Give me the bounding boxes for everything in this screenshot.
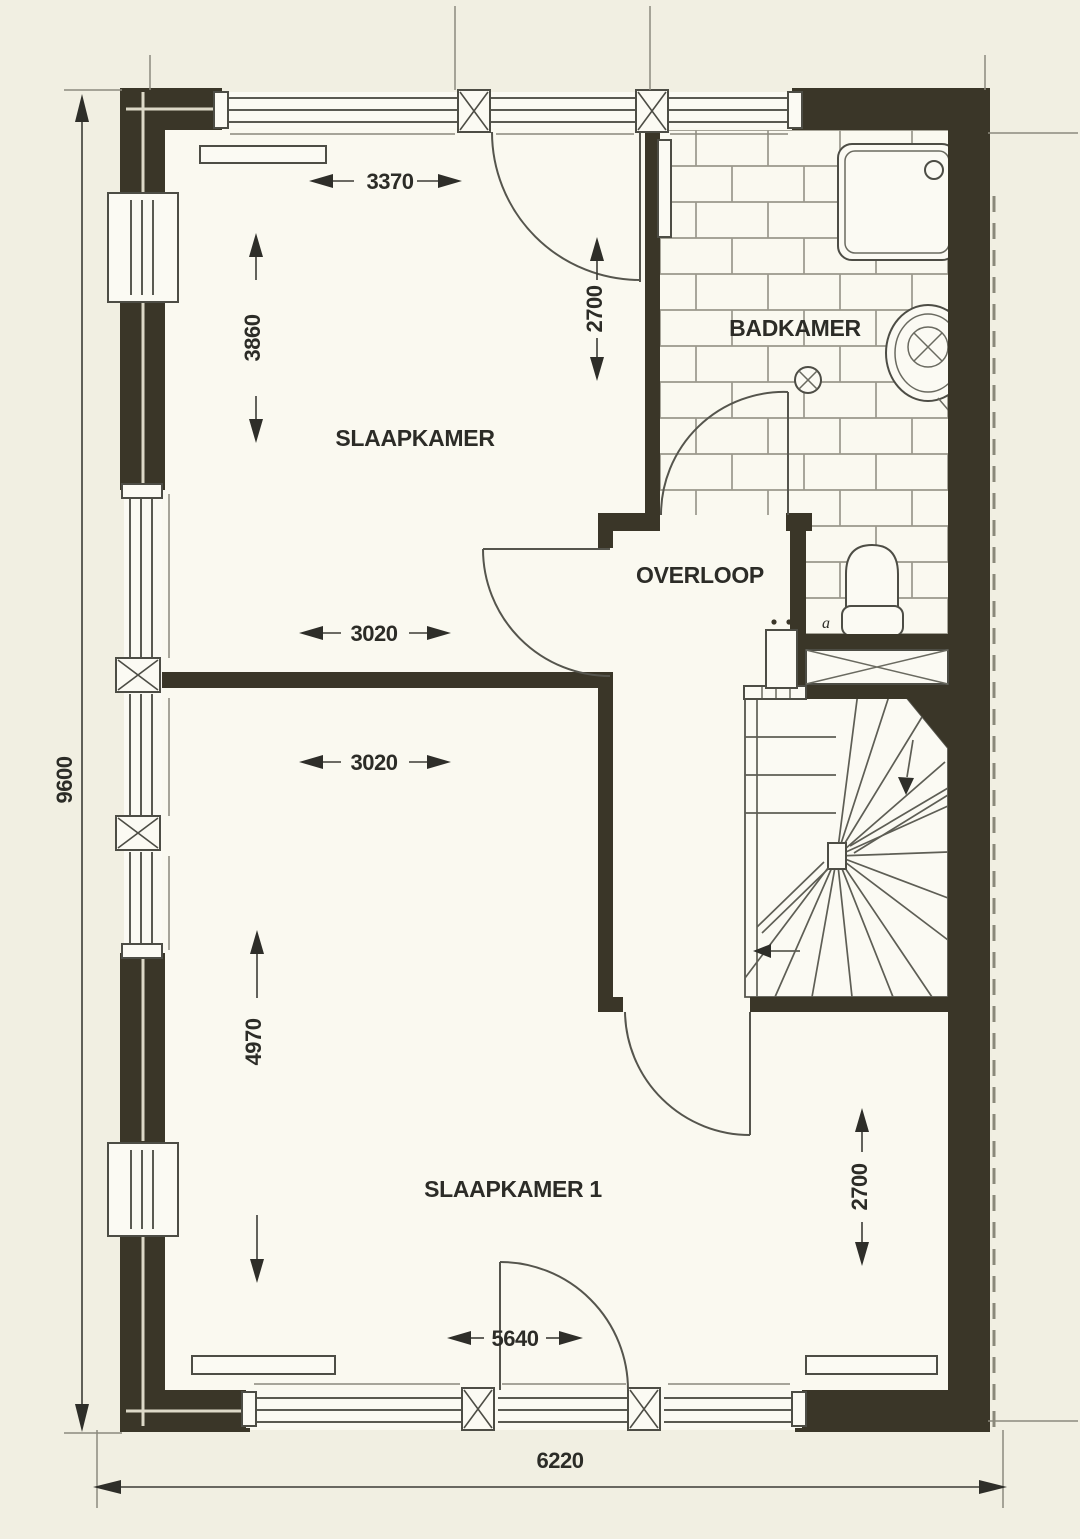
dim-text-5640: 5640 <box>492 1326 539 1351</box>
dim-text-2700-slk1: 2700 <box>847 1163 872 1210</box>
stair-post <box>828 843 846 869</box>
shower-drain-icon <box>925 161 943 179</box>
toilet <box>842 545 903 636</box>
dim-text-3860: 3860 <box>240 314 265 361</box>
duct-shaft <box>806 650 948 684</box>
room-label-overloop: OVERLOOP <box>636 562 764 588</box>
radiator <box>806 1356 937 1374</box>
dim-text-2700-badkamer: 2700 <box>582 285 607 332</box>
vent-unit <box>766 619 797 688</box>
radiator <box>192 1356 335 1374</box>
dim-text-3370: 3370 <box>367 169 414 194</box>
dim-text-3020-a: 3020 <box>351 621 398 646</box>
dim-overall-width: 6220 <box>93 1448 1007 1494</box>
radiator <box>658 140 671 237</box>
floor-drain-icon <box>795 367 821 393</box>
room-label-slaapkamer: SLAAPKAMER <box>335 425 495 451</box>
shower-tray <box>838 144 956 260</box>
floorplan-sheet: 9600 6220 3370 3860 2700 <box>0 0 1080 1539</box>
room-label-slaapkamer1: SLAAPKAMER 1 <box>424 1176 602 1202</box>
radiator <box>200 146 326 163</box>
dim-text-4970: 4970 <box>241 1018 266 1065</box>
dim-text-3020-b: 3020 <box>351 750 398 775</box>
bay-window-lower <box>108 1143 178 1236</box>
floorplan-drawing: 9600 6220 3370 3860 2700 <box>0 0 1080 1539</box>
bay-window-upper <box>108 193 178 302</box>
room-label-badkamer: BADKAMER <box>729 315 861 341</box>
dim-text-6220: 6220 <box>537 1448 584 1473</box>
dim-text-9600: 9600 <box>52 756 77 803</box>
toilet-annotation: a <box>822 615 830 632</box>
staircase <box>745 690 950 997</box>
dim-overall-height: 9600 <box>52 94 89 1432</box>
